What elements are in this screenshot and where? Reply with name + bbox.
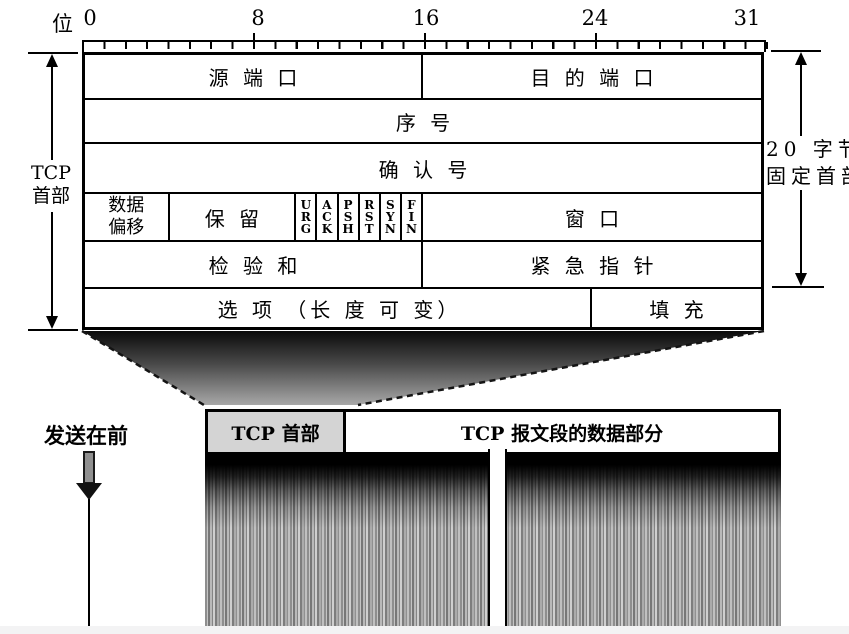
cell-window: 窗 口 xyxy=(423,194,761,242)
tcp-header-figure: 位 0 8 16 24 31 源 端 口 目 的 端 口 序 号 确 认 号 数… xyxy=(0,0,849,634)
ruler-tick-label-16: 16 xyxy=(413,6,440,30)
send-direction-label: 发送在前 xyxy=(44,420,128,450)
send-direction-arrow-shaft xyxy=(83,451,95,484)
cell-urgent-pointer: 紧 急 指 针 xyxy=(423,242,761,289)
page-bottom-edge xyxy=(0,626,849,634)
right-extent-line-lower xyxy=(800,190,802,274)
cell-checksum: 检 验 和 xyxy=(85,242,423,289)
right-extent-bottom-cap xyxy=(772,286,824,288)
ruler-tick-label-31: 31 xyxy=(734,6,761,30)
cell-flag-ack: A C K xyxy=(317,194,338,242)
segment-data-box: TCP 报文段的数据部分 xyxy=(346,412,778,452)
funnel-shadow xyxy=(80,330,770,408)
send-direction-arrowhead xyxy=(76,483,102,500)
ruler-tick-label-0: 0 xyxy=(83,6,96,30)
ruler-tick-label-24: 24 xyxy=(582,6,609,30)
cell-flag-syn: S Y N xyxy=(381,194,402,242)
cell-flag-urg: U R G xyxy=(296,194,317,242)
cell-flag-fin: F I N xyxy=(402,194,423,242)
cell-reserved: 保 留 xyxy=(170,194,297,242)
cell-sequence-number: 序 号 xyxy=(85,100,761,144)
ruler-end-tick-right xyxy=(764,42,766,52)
left-extent-arrowhead-down xyxy=(46,316,58,329)
cell-ack-number: 确 认 号 xyxy=(85,144,761,194)
cell-options: 选 项 （长 度 可 变） xyxy=(85,289,592,327)
cell-source-port: 源 端 口 xyxy=(85,55,423,100)
right-extent-label: 20 字节的 固定首部 xyxy=(766,136,849,190)
ruler-major-tick-24 xyxy=(595,33,597,40)
send-direction-arrow-tail-line xyxy=(88,499,90,626)
tcp-header-table: 源 端 口 目 的 端 口 序 号 确 认 号 数据 偏移 保 留 U R G … xyxy=(82,52,764,330)
right-extent-arrowhead-down xyxy=(795,273,807,286)
ruler-tick-label-8: 8 xyxy=(251,6,264,30)
cell-padding: 填 充 xyxy=(592,289,761,327)
left-extent-label: TCP 首部 xyxy=(18,162,84,208)
right-extent-line-upper xyxy=(800,64,802,136)
left-extent-line-lower xyxy=(51,212,53,316)
left-extent-line-upper xyxy=(51,64,53,160)
segment-divider-notch xyxy=(488,449,507,626)
left-extent-bottom-cap xyxy=(28,329,78,331)
ruler-major-tick-16 xyxy=(424,33,426,40)
ruler-major-tick-8 xyxy=(253,33,255,40)
bit-unit-label: 位 xyxy=(52,8,73,38)
cell-flag-psh: P S H xyxy=(339,194,360,242)
cell-data-offset: 数据 偏移 xyxy=(85,194,170,242)
cell-flag-rst: R S T xyxy=(360,194,381,242)
cell-destination-port: 目 的 端 口 xyxy=(423,55,761,100)
ruler-ticks xyxy=(82,42,768,49)
segment-header-box: TCP 首部 xyxy=(208,412,346,452)
